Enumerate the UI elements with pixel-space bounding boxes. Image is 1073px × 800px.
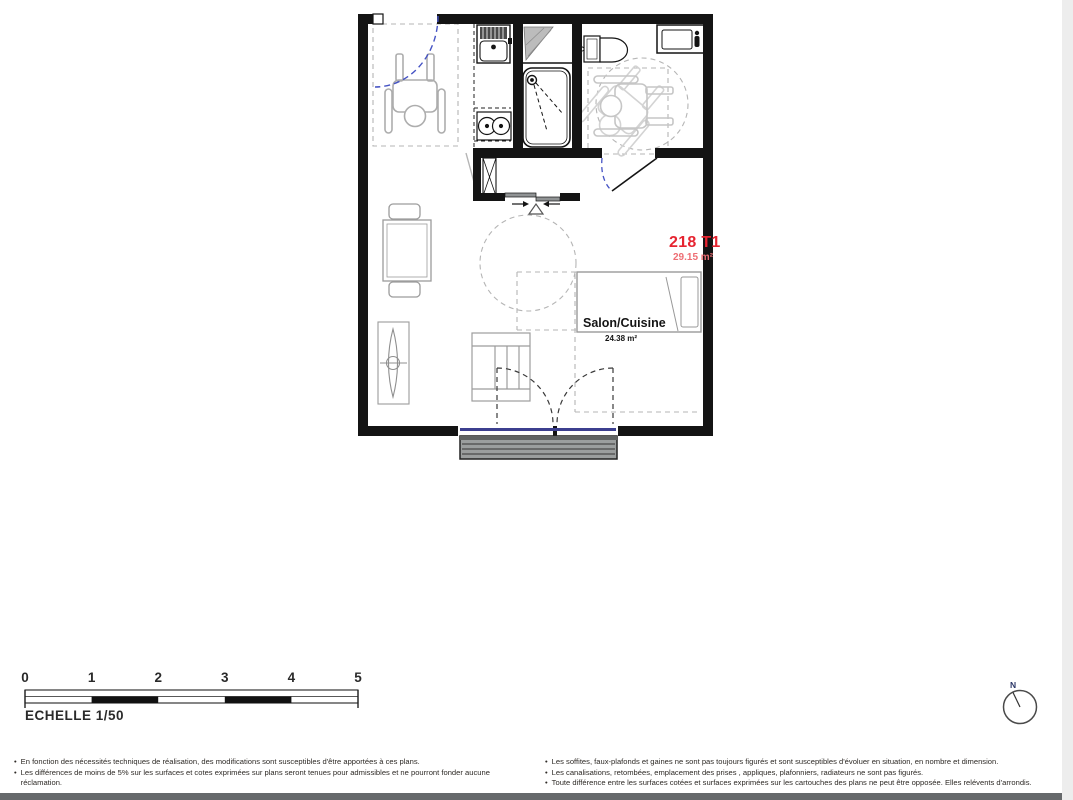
- sideboard: [378, 322, 409, 404]
- svg-text:3: 3: [221, 670, 229, 685]
- toilet: [580, 36, 628, 62]
- door-jamb: [373, 14, 383, 24]
- footer-note-text: En fonction des nécessités techniques de…: [21, 757, 420, 768]
- footer-notes-left: En fonction des nécessités techniques de…: [14, 757, 526, 789]
- floor-plan: Salon/Cuisine 24.38 m² 218 T1 29.15 m²: [350, 5, 725, 465]
- unit-label: 218 T1: [669, 234, 721, 251]
- technical-niche: [523, 27, 572, 63]
- sofa: [472, 333, 530, 401]
- unit-area: 29.15 m²: [673, 252, 714, 263]
- dining-table-and-chairs: [383, 204, 431, 297]
- bottom-divider-bar: [0, 793, 1062, 800]
- scale-bar-graphic: [25, 690, 358, 708]
- cooktop: [477, 112, 511, 140]
- footer-note: Les canalisations, retombées, emplacemen…: [545, 768, 1061, 779]
- footer-note-text: Les canalisations, retombées, emplacemen…: [552, 768, 923, 779]
- scale-label: ECHELLE 1/50: [25, 708, 124, 723]
- room-label: Salon/Cuisine: [583, 316, 666, 330]
- shower: [523, 68, 570, 147]
- right-edge-strip: [1062, 0, 1073, 800]
- compass-needle: [1013, 693, 1020, 708]
- svg-text:1: 1: [88, 670, 96, 685]
- room-area: 24.38 m²: [605, 334, 637, 343]
- footer-note-text: Toute différence entre les surfaces coté…: [552, 778, 1032, 789]
- footer-notes-right: Les soffites, faux-plafonds et gaines ne…: [545, 757, 1061, 789]
- balcony: [460, 436, 617, 459]
- bathroom-door: [602, 158, 657, 191]
- wheelchair-icon: [576, 58, 673, 157]
- wheelchair-icon: [385, 54, 445, 133]
- svg-text:4: 4: [288, 670, 296, 685]
- footer-note: En fonction des nécessités techniques de…: [14, 757, 526, 768]
- washbasin: [657, 25, 706, 53]
- footer-note: Les différences de moins de 5% sur les s…: [14, 768, 526, 789]
- svg-text:0: 0: [21, 670, 29, 685]
- svg-text:5: 5: [354, 670, 362, 685]
- footer-note: Toute différence entre les surfaces coté…: [545, 778, 1061, 789]
- svg-text:2: 2: [154, 670, 162, 685]
- north-label: N: [1010, 680, 1016, 690]
- entry-marker: [529, 204, 543, 214]
- kitchen-sink: [477, 25, 512, 63]
- footer-note-text: Les différences de moins de 5% sur les s…: [21, 768, 526, 789]
- entry-door-swing: [375, 16, 438, 87]
- scale-bar: 0 1 2 3 4 5 ECHELLE 1/50: [8, 662, 378, 724]
- footer-note: Les soffites, faux-plafonds et gaines ne…: [545, 757, 1061, 768]
- footer-note-text: Les soffites, faux-plafonds et gaines ne…: [552, 757, 999, 768]
- scale-tick-labels: 0 1 2 3 4 5: [21, 670, 362, 685]
- page: { "plan": { "unit_label": "218 T1", "uni…: [0, 0, 1073, 800]
- window-glazing: [460, 428, 616, 431]
- compass: N: [992, 678, 1048, 728]
